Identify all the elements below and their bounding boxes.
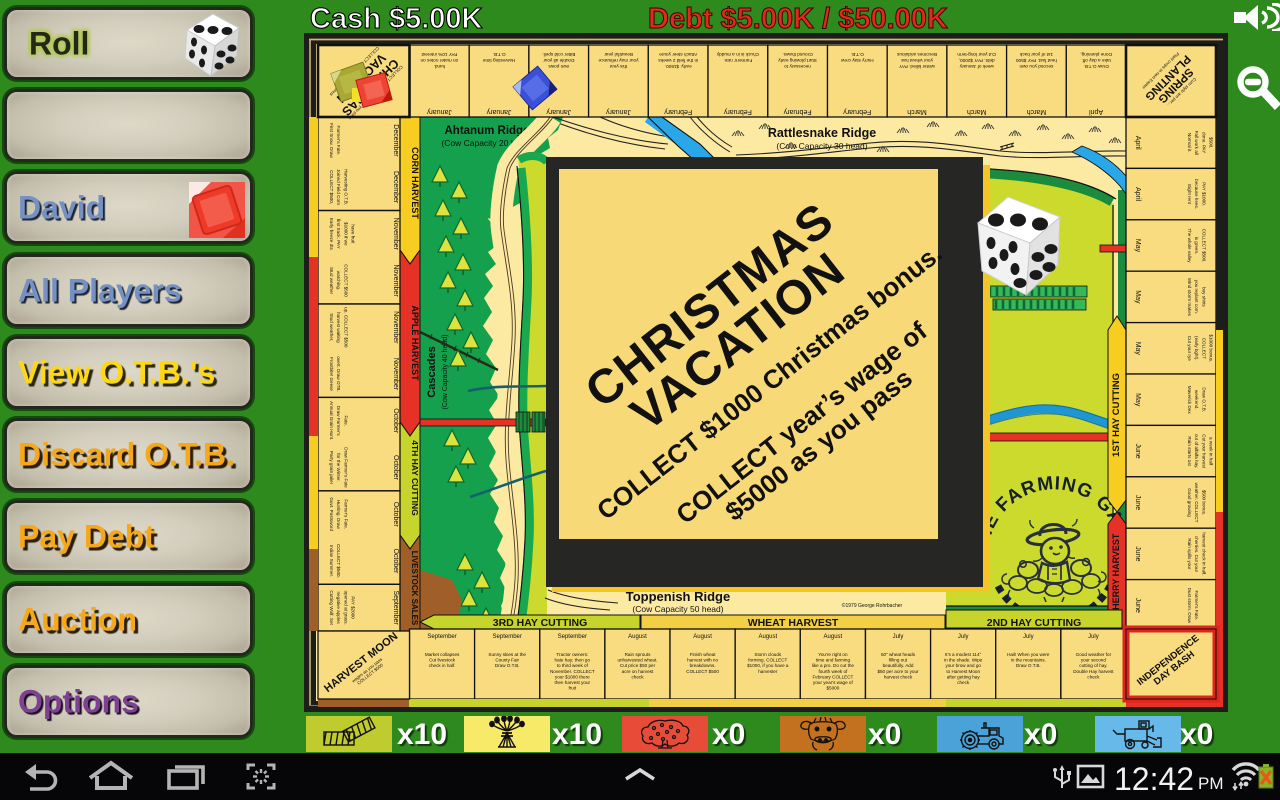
- svg-text:LIVESTOCK SALES: LIVESTOCK SALES: [410, 551, 419, 626]
- svg-text:acre on harvest: acre on harvest: [622, 669, 654, 674]
- svg-text:Farmer's Fate.: Farmer's Fate.: [1194, 590, 1199, 620]
- svg-text:Market collapses: Market collapses: [425, 652, 460, 657]
- svg-text:January: January: [606, 108, 631, 115]
- svg-text:COLLECT $500.: COLLECT $500.: [1201, 229, 1206, 263]
- svg-text:June: June: [1134, 495, 1141, 510]
- svg-text:September: September: [558, 634, 587, 640]
- svg-text:Done planning,: Done planning,: [1080, 52, 1112, 57]
- svg-text:Attach steer youre: Attach steer youre: [659, 52, 697, 57]
- svg-text:time and farming: time and farming: [816, 658, 851, 663]
- svg-text:Early freeze dts: Early freeze dts: [329, 218, 334, 251]
- svg-text:Sunny skies at the: Sunny skies at the: [488, 652, 526, 657]
- svg-text:Hurry stay crew: Hurry stay crew: [840, 58, 873, 63]
- svg-text:cherries. Cut your: cherries. Cut your: [1194, 536, 1199, 573]
- svg-text:Rattlesnake Ridge: Rattlesnake Ridge: [768, 126, 876, 140]
- svg-text:Storm clouds: Storm clouds: [754, 652, 782, 657]
- svg-text:winter killed. PAY: winter killed. PAY: [898, 64, 935, 69]
- svg-text:your brow and go: your brow and go: [945, 663, 981, 668]
- svg-text:PAY $2000: PAY $2000: [351, 596, 356, 619]
- svg-text:fourth week of: fourth week of: [818, 669, 848, 674]
- svg-text:January: January: [426, 108, 451, 115]
- svg-text:Beautiful year: Beautiful year: [604, 52, 633, 57]
- svg-text:August: August: [693, 634, 712, 640]
- svg-text:COLLECT $500: COLLECT $500: [343, 264, 348, 297]
- svg-text:$1000, if you have a: $1000, if you have a: [747, 663, 789, 668]
- svg-text:your year's wage of: your year's wage of: [813, 680, 853, 685]
- svg-text:October: October: [392, 455, 399, 481]
- svg-text:Draw O.T.B.: Draw O.T.B.: [495, 663, 520, 668]
- svg-text:50" wheat heads: 50" wheat heads: [881, 652, 916, 657]
- svg-text:forming. COLLECT: forming. COLLECT: [748, 658, 787, 663]
- svg-text:3RD HAY CUTTING: 3RD HAY CUTTING: [493, 617, 588, 629]
- svg-text:Start plowing early: Start plowing early: [778, 58, 817, 63]
- svg-text:WHEAT HARVEST: WHEAT HARVEST: [748, 617, 839, 629]
- svg-text:second you own: second you own: [1019, 64, 1053, 69]
- svg-text:Farmer's Fate.: Farmer's Fate.: [336, 126, 341, 156]
- svg-text:October: October: [392, 408, 399, 434]
- svg-text:May: May: [1134, 239, 1141, 253]
- svg-text:(early bght).: (early bght).: [1194, 336, 1199, 361]
- svg-text:1st of your back: 1st of your back: [1019, 52, 1053, 57]
- svg-text:August: August: [758, 634, 777, 640]
- svg-text:in the mountains.: in the mountains.: [1011, 658, 1046, 663]
- svg-text:$1000 if we: $1000 if we: [343, 222, 348, 246]
- svg-text:Hail! When you were: Hail! When you were: [1007, 652, 1050, 657]
- svg-text:filling out: filling out: [889, 658, 908, 663]
- svg-text:Chuck is in a muddy: Chuck is in a muddy: [716, 52, 759, 57]
- svg-text:(Cow Capacity 50 head): (Cow Capacity 50 head): [632, 604, 723, 614]
- svg-text:Harvesting O.T.B.: Harvesting O.T.B.: [343, 169, 348, 205]
- svg-text:April: April: [1089, 108, 1103, 115]
- svg-text:Eight rent: Eight rent: [1187, 184, 1192, 204]
- svg-text:hand.: hand.: [434, 64, 446, 69]
- svg-text:September: September: [392, 590, 399, 625]
- svg-text:Good growing: Good growing: [1187, 488, 1192, 517]
- svg-text:February COLLECT: February COLLECT: [812, 674, 853, 679]
- svg-text:July: July: [958, 634, 969, 640]
- svg-text:Becomes aridulous: Becomes aridulous: [896, 52, 937, 57]
- svg-text:May: May: [1134, 290, 1141, 304]
- svg-text:done. PAY: done. PAY: [1201, 132, 1206, 153]
- svg-text:April: April: [1134, 187, 1141, 201]
- svg-text:Farmers' rate.: Farmers' rate.: [723, 58, 752, 63]
- svg-text:February: February: [843, 108, 872, 115]
- svg-text:check: check: [1087, 674, 1100, 679]
- svg-text:Double Hay harvest: Double Hay harvest: [1073, 669, 1114, 674]
- svg-text:weekend.: weekend.: [1194, 390, 1199, 410]
- svg-text:watching.: watching.: [336, 271, 341, 290]
- svg-text:May: May: [1134, 342, 1141, 356]
- svg-text:COLLECT: COLLECT: [1201, 338, 1206, 359]
- svg-text:harvest with no: harvest with no: [687, 658, 718, 663]
- svg-text:Farmer's Fate.: Farmer's Fate.: [343, 499, 348, 529]
- svg-text:November: November: [392, 218, 399, 251]
- svg-text:July: July: [1023, 634, 1034, 640]
- svg-text:cut of alfalfa hay.: cut of alfalfa hay.: [1194, 434, 1199, 468]
- svg-text:Rain starts 1st: Rain starts 1st: [1187, 436, 1192, 466]
- svg-text:September: September: [493, 634, 522, 640]
- svg-text:It's a modest 114°: It's a modest 114°: [945, 652, 981, 657]
- svg-text:Draw Farmer's Fate: Draw Farmer's Fate: [343, 447, 348, 488]
- svg-text:August: August: [628, 634, 647, 640]
- svg-text:O.T.B.: O.T.B.: [851, 52, 864, 57]
- svg-text:July: July: [893, 634, 904, 640]
- svg-text:March: March: [907, 108, 927, 115]
- svg-text:harvest check in half.: harvest check in half.: [1201, 532, 1206, 575]
- svg-text:4TH HAY CUTTING: 4TH HAY CUTTING: [410, 440, 420, 516]
- svg-text:debt. PAY $2000,: debt. PAY $2000,: [959, 58, 995, 63]
- svg-text:March: March: [1027, 108, 1047, 115]
- svg-text:Fall work all: Fall work all: [1194, 131, 1199, 155]
- svg-text:Party grain jailer: Party grain jailer: [329, 451, 334, 485]
- svg-text:CORN HARVEST: CORN HARVEST: [410, 147, 420, 219]
- svg-text:Harvesting time: Harvesting time: [482, 58, 515, 63]
- svg-text:Cascades: Cascades: [426, 346, 438, 397]
- svg-text:$500.: $500.: [1209, 137, 1214, 149]
- svg-text:June: June: [1134, 444, 1141, 459]
- svg-text:Dust storm. Draw: Dust storm. Draw: [1187, 588, 1192, 624]
- svg-text:Joined Field Corn: Joined Field Corn: [336, 169, 341, 205]
- svg-text:November: November: [392, 358, 399, 391]
- svg-text:in the field 2 weeks: in the field 2 weeks: [658, 58, 699, 63]
- svg-text:Rain sprouts: Rain sprouts: [625, 652, 651, 657]
- svg-text:October: October: [392, 502, 399, 528]
- svg-text:January: January: [546, 108, 571, 115]
- svg-text:County Fair: County Fair: [495, 658, 519, 663]
- svg-text:December: December: [392, 171, 399, 204]
- svg-text:March: March: [967, 108, 987, 115]
- svg-text:$1000 bonus.: $1000 bonus.: [1209, 334, 1214, 362]
- svg-text:opened at grass.: opened at grass.: [343, 590, 348, 624]
- svg-text:September: September: [427, 634, 456, 640]
- svg-text:to Harvest Moon: to Harvest Moon: [946, 669, 980, 674]
- svg-text:August: August: [824, 634, 843, 640]
- svg-text:Maverick Dex: Maverick Dex: [1187, 386, 1192, 415]
- svg-text:hate hay; then go: hate hay; then go: [555, 658, 591, 663]
- svg-text:early. $1500.: early. $1500.: [665, 64, 692, 69]
- svg-text:PAY 10% interest: PAY 10% interest: [421, 52, 458, 57]
- svg-text:Rain spills your: Rain spills your: [1187, 538, 1192, 570]
- svg-text:you replant corn.: you replant corn.: [1194, 280, 1199, 314]
- svg-text:weather. COLLECT: weather. COLLECT: [1194, 483, 1199, 523]
- svg-text:Good weather for: Good weather for: [1076, 652, 1112, 657]
- svg-text:check in half.: check in half.: [429, 663, 456, 668]
- svg-text:Double all your: Double all your: [543, 58, 575, 63]
- svg-text:first track. PAY: first track. PAY: [336, 219, 341, 249]
- svg-text:Stud weather,: Stud weather,: [329, 313, 334, 341]
- svg-text:Indian Summer.: Indian Summer.: [329, 545, 334, 577]
- svg-text:Cut your long-term: Cut your long-term: [957, 52, 996, 57]
- svg-text:Stud weather: Stud weather: [329, 267, 334, 295]
- svg-text:COLLECT $500,: COLLECT $500,: [329, 170, 334, 204]
- svg-text:Draw Farmer's: Draw Farmer's: [336, 406, 341, 437]
- svg-text:necessary to: necessary to: [784, 64, 811, 69]
- svg-text:PAY $1000.: PAY $1000.: [1201, 182, 1206, 206]
- svg-text:First Snow. Draw: First Snow. Draw: [329, 123, 334, 158]
- svg-text:2ND HAY CUTTING: 2ND HAY CUTTING: [987, 617, 1082, 629]
- svg-text:©1979 George Rohrbacher: ©1979 George Rohrbacher: [842, 602, 903, 609]
- svg-text:up. COLLECT $500: up. COLLECT $500: [343, 307, 348, 348]
- svg-text:this year: this year: [609, 64, 627, 69]
- svg-text:Cut livestock: Cut livestock: [429, 658, 456, 663]
- svg-text:breakdowns.: breakdowns.: [690, 663, 716, 668]
- svg-text:Cut your rye: Cut your rye: [1187, 336, 1192, 361]
- svg-text:June: June: [1134, 546, 1141, 561]
- svg-text:heat fast. PAY $500: heat fast. PAY $500: [1016, 58, 1057, 63]
- svg-text:beautifully. Add: beautifully. Add: [883, 663, 914, 668]
- svg-text:July: July: [1088, 634, 1099, 640]
- svg-text:harvest waiting: harvest waiting: [336, 312, 341, 343]
- svg-text:check: check: [957, 680, 970, 685]
- svg-text:cutting of hay.: cutting of hay.: [1079, 663, 1107, 668]
- svg-text:Ahtanum Ridge: Ahtanum Ridge: [445, 125, 530, 137]
- svg-text:You're right on: You're right on: [818, 652, 848, 657]
- svg-text:Draw O.T.B.: Draw O.T.B.: [1201, 387, 1206, 412]
- svg-text:(Cow Capacity 30 head): (Cow Capacity 30 head): [776, 141, 867, 151]
- svg-text:own pows: own pows: [548, 64, 570, 69]
- svg-text:February: February: [664, 108, 693, 115]
- svg-text:Fate.: Fate.: [343, 415, 348, 425]
- svg-text:Normal it.: Normal it.: [1187, 133, 1192, 153]
- svg-text:take a day off.: take a day off.: [1081, 58, 1110, 63]
- svg-text:on mater notes on: on mater notes on: [420, 58, 458, 63]
- svg-text:Cut price $50 per: Cut price $50 per: [620, 663, 656, 668]
- svg-text:November: November: [392, 264, 399, 297]
- svg-text:October: October: [392, 548, 399, 574]
- svg-text:buy shirts: buy shirts: [1201, 287, 1206, 307]
- svg-text:harvest check: harvest check: [884, 674, 913, 679]
- svg-text:because hees.: because hees.: [1194, 179, 1199, 209]
- svg-text:Wind storm makes: Wind storm makes: [1187, 278, 1192, 317]
- svg-text:Tractor owners:: Tractor owners:: [556, 652, 588, 657]
- svg-text:then harvest your: then harvest your: [555, 680, 591, 685]
- svg-text:June: June: [1134, 598, 1141, 613]
- svg-text:to third week of: to third week of: [557, 663, 589, 668]
- svg-text:$50 per acre to your: $50 per acre to your: [877, 669, 919, 674]
- svg-text:Bitter cold spell.: Bitter cold spell.: [542, 52, 575, 57]
- svg-text:February: February: [723, 108, 752, 115]
- svg-text:check: check: [631, 674, 644, 679]
- svg-text:Hunting. Draw: Hunting. Draw: [336, 500, 341, 530]
- svg-text:in the shade. Wipe: in the shade. Wipe: [944, 658, 982, 663]
- svg-text:week of January: week of January: [959, 64, 994, 69]
- svg-text:PM: PM: [1198, 774, 1224, 793]
- svg-text:COLLECT $500.: COLLECT $500.: [336, 544, 341, 578]
- svg-text:November: November: [392, 311, 399, 344]
- svg-text:is green.: is green.: [1194, 237, 1199, 255]
- svg-text:Draw O.T.B.: Draw O.T.B.: [1083, 64, 1108, 69]
- svg-text:February: February: [783, 108, 812, 115]
- svg-text:overt. Draw OTB.: overt. Draw OTB.: [336, 356, 341, 391]
- svg-text:unharvested wheat.: unharvested wheat.: [617, 658, 657, 663]
- svg-text:April: April: [1134, 136, 1141, 150]
- svg-text:have fruit: have fruit: [351, 224, 356, 244]
- svg-text:negative apples: negative apples: [336, 592, 341, 625]
- svg-text:January: January: [486, 108, 511, 115]
- svg-text:Finish wheat: Finish wheat: [690, 652, 717, 657]
- svg-text:after getting hay: after getting hay: [947, 674, 981, 679]
- svg-text:COLLECT $500: COLLECT $500: [686, 669, 719, 674]
- svg-text:$5000: $5000: [827, 686, 840, 691]
- svg-text:like a pro. Do cut the: like a pro. Do cut the: [812, 663, 855, 668]
- svg-text:harvester: harvester: [758, 669, 778, 674]
- svg-text:your may refinance: your may refinance: [598, 58, 638, 63]
- svg-text:November. COLLECT: November. COLLECT: [550, 669, 595, 674]
- svg-text:December: December: [392, 124, 399, 157]
- svg-text:Draw O.T.B.: Draw O.T.B.: [1016, 663, 1041, 668]
- svg-text:12:42: 12:42: [1114, 761, 1194, 797]
- svg-text:APPLE HARVEST: APPLE HARVEST: [410, 305, 420, 381]
- svg-text:Annual Grain Hunt.: Annual Grain Hunt.: [329, 401, 334, 440]
- svg-text:Cutting Wolf. Set: Cutting Wolf. Set: [329, 590, 334, 625]
- svg-text:Guvt. Postsword: Guvt. Postsword: [329, 497, 334, 531]
- svg-text:your $1000 there: your $1000 there: [555, 674, 590, 679]
- svg-text:The whole valley: The whole valley: [1187, 228, 1192, 263]
- svg-text:$500 bonus.: $500 bonus.: [1201, 490, 1206, 515]
- svg-text:for the Winter.: for the Winter.: [336, 453, 341, 482]
- svg-text:1ST HAY CUTTING: 1ST HAY CUTTING: [1111, 373, 1122, 457]
- svg-text:your wheat has: your wheat has: [900, 58, 932, 63]
- svg-text:Frostbite! Geese: Frostbite! Geese: [329, 357, 334, 391]
- svg-text:May: May: [1134, 393, 1141, 407]
- svg-text:a week in half: a week in half: [1209, 437, 1214, 466]
- svg-text:CHERRY HARVEST: CHERRY HARVEST: [1111, 533, 1121, 616]
- svg-text:O.T.B.: O.T.B.: [493, 52, 506, 57]
- svg-text:Cut your harvest: Cut your harvest: [1201, 434, 1206, 468]
- svg-text:Ground thaws.: Ground thaws.: [782, 52, 813, 57]
- svg-text:your second: your second: [1081, 658, 1106, 663]
- svg-text:fruit: fruit: [568, 686, 576, 691]
